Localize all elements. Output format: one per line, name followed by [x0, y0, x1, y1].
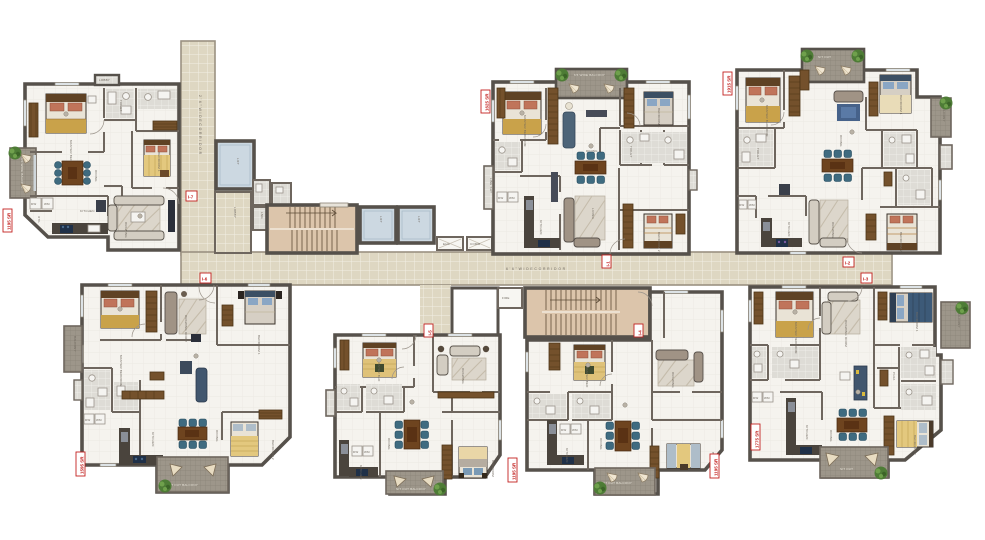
svg-text:MASTER BED: MASTER BED — [585, 366, 589, 388]
svg-text:LOBBY: LOBBY — [233, 207, 237, 218]
svg-text:BEDROOM 2: BEDROOM 2 — [657, 232, 661, 252]
svg-text:LOBBY: LOBBY — [99, 78, 110, 82]
svg-text:MASTER BEDROOM: MASTER BEDROOM — [523, 115, 527, 147]
svg-text:LIFT: LIFT — [379, 216, 383, 223]
svg-text:KITCHEN: KITCHEN — [539, 220, 543, 235]
svg-text:BEDROOM 2: BEDROOM 2 — [271, 440, 275, 460]
svg-text:WM: WM — [509, 196, 515, 200]
svg-text:TOILET: TOILET — [756, 148, 760, 160]
svg-text:DW: DW — [85, 418, 90, 422]
svg-text:MASTER BED: MASTER BED — [377, 360, 381, 382]
svg-text:BEDROOM 2: BEDROOM 2 — [899, 232, 903, 252]
svg-text:KITCHEN: KITCHEN — [151, 432, 155, 447]
svg-text:I-1: I-1 — [606, 261, 611, 267]
svg-text:DINING: DINING — [599, 438, 603, 450]
svg-text:1775 Sft: 1775 Sft — [755, 430, 760, 448]
svg-text:WM: WM — [764, 396, 770, 400]
svg-text:LIFT: LIFT — [417, 216, 421, 223]
svg-text:SIT OUT BALCONY: SIT OUT BALCONY — [602, 481, 632, 485]
svg-text:SIT OUT BALCONY: SIT OUT BALCONY — [396, 487, 426, 491]
svg-text:1595 SR: 1595 SR — [80, 456, 85, 474]
svg-text:PUJA: PUJA — [892, 372, 896, 380]
svg-text:SIT OUT: SIT OUT — [840, 467, 853, 471]
svg-text:MASTER BEDROOM: MASTER BEDROOM — [794, 322, 798, 354]
svg-text:BALCONY: BALCONY — [73, 336, 77, 352]
svg-text:DINING: DINING — [839, 135, 843, 147]
svg-text:WM: WM — [44, 202, 50, 206]
svg-text:2 ' 6 " W I D E C O R R I D: 2 ' 6 " W I D E C O R R I D O R — [198, 95, 202, 155]
svg-text:1625 SR: 1625 SR — [485, 93, 490, 111]
svg-text:DRAWING: DRAWING — [461, 368, 465, 384]
svg-text:1195 SR: 1195 SR — [512, 462, 517, 480]
svg-text:EHC: EHC — [443, 242, 451, 246]
svg-text:TOILET: TOILET — [629, 146, 633, 158]
svg-text:DW: DW — [353, 450, 358, 454]
svg-text:DRAWING ROOM: DRAWING ROOM — [184, 315, 188, 342]
svg-text:SIT OUT BALCONY: SIT OUT BALCONY — [168, 483, 198, 487]
svg-text:TOILET: TOILET — [119, 100, 123, 112]
svg-text:BEDROOM 1: BEDROOM 1 — [657, 108, 661, 128]
svg-text:BEDROOM 1: BEDROOM 1 — [157, 152, 161, 172]
svg-text:COMM: COMM — [470, 242, 481, 246]
svg-text:WM: WM — [364, 450, 370, 454]
svg-text:I-5: I-5 — [428, 330, 433, 336]
svg-text:LINE SHT: LINE SHT — [489, 178, 493, 193]
svg-text:DW: DW — [561, 428, 566, 432]
svg-text:DINING: DINING — [215, 430, 219, 442]
svg-text:BALCONY: BALCONY — [957, 312, 961, 328]
svg-text:FIRE: FIRE — [502, 296, 510, 300]
svg-text:DINING: DINING — [586, 149, 598, 153]
svg-text:DRAWING ROOM: DRAWING ROOM — [844, 320, 848, 347]
svg-text:KITCHEN: KITCHEN — [805, 425, 809, 440]
svg-text:LIVING: LIVING — [591, 208, 595, 220]
svg-text:1195 SR: 1195 SR — [714, 458, 719, 476]
svg-text:DRAWING: DRAWING — [124, 222, 128, 238]
svg-text:DW: DW — [498, 196, 503, 200]
svg-text:KITCHEN: KITCHEN — [359, 465, 363, 480]
svg-text:BEDROOM 1: BEDROOM 1 — [257, 335, 261, 355]
svg-text:KITCHEN: KITCHEN — [787, 222, 791, 237]
svg-text:SIT OUT: SIT OUT — [818, 55, 831, 59]
svg-text:KITCHEN: KITCHEN — [80, 209, 95, 213]
svg-text:WM: WM — [96, 418, 102, 422]
svg-text:WM: WM — [572, 428, 578, 432]
svg-text:I-6: I-6 — [202, 277, 208, 282]
svg-text:DW: DW — [753, 396, 758, 400]
svg-text:1915 SR: 1915 SR — [727, 75, 732, 93]
svg-text:BEDROOM: BEDROOM — [491, 460, 495, 477]
svg-text:KITCHEN: KITCHEN — [565, 448, 569, 463]
svg-text:DINING: DINING — [387, 438, 391, 450]
svg-text:MASTER BEDROOM: MASTER BEDROOM — [119, 355, 123, 387]
svg-text:I-2: I-2 — [845, 261, 851, 266]
svg-text:DINING: DINING — [94, 170, 98, 182]
svg-text:UTIL: UTIL — [37, 216, 41, 223]
svg-text:BEDROOM 1: BEDROOM 1 — [899, 95, 903, 115]
svg-text:DRAWING: DRAWING — [671, 372, 675, 388]
svg-text:BEDROOM 1: BEDROOM 1 — [915, 312, 919, 332]
svg-text:LNG: LNG — [260, 212, 264, 219]
svg-text:DRAWING: DRAWING — [831, 222, 835, 238]
svg-text:I-4: I-4 — [638, 330, 643, 336]
svg-text:6'6 WIDE BALCONY: 6'6 WIDE BALCONY — [574, 73, 605, 77]
svg-text:I-7: I-7 — [188, 195, 194, 200]
svg-text:MASTER BED: MASTER BED — [69, 140, 73, 162]
svg-text:DINING: DINING — [829, 430, 833, 442]
svg-text:WM: WM — [749, 203, 755, 207]
svg-text:DW: DW — [31, 202, 36, 206]
svg-text:1195 SR: 1195 SR — [7, 212, 12, 230]
svg-text:LIFT: LIFT — [236, 158, 240, 165]
svg-text:MASTER BEDROOM: MASTER BEDROOM — [765, 105, 769, 137]
svg-text:I-3: I-3 — [863, 277, 869, 282]
svg-text:6 ' 6 " W I D E C O R R I D: 6 ' 6 " W I D E C O R R I D O R — [506, 267, 566, 271]
svg-text:DW: DW — [739, 203, 744, 207]
svg-text:BEDROOM 2: BEDROOM 2 — [913, 435, 917, 455]
